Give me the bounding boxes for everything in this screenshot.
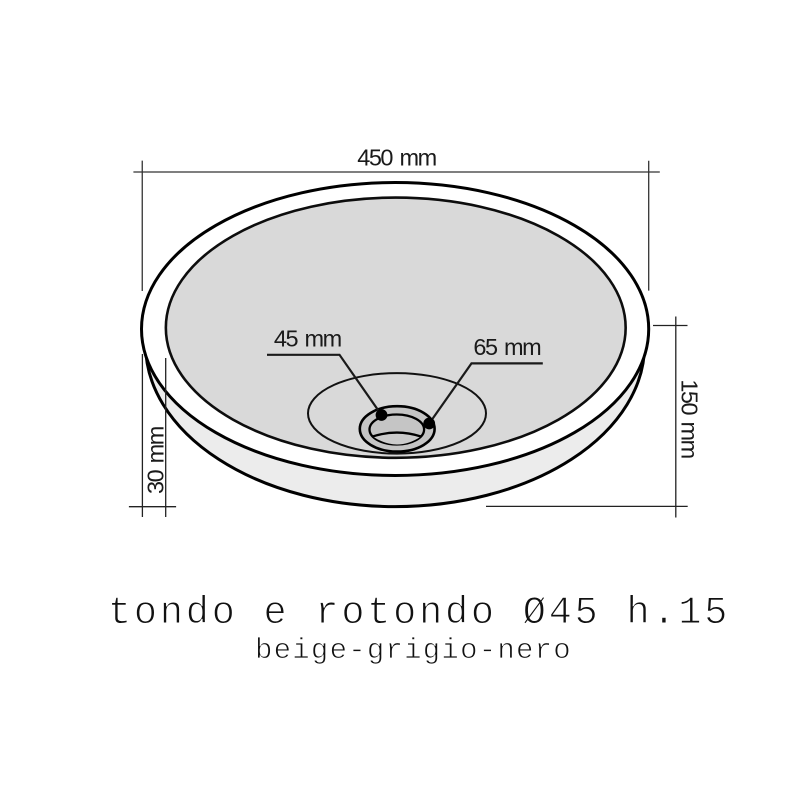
svg-text:450 mm: 450 mm xyxy=(357,145,436,171)
svg-text:tondo e rotondo Ø45 h.15: tondo e rotondo Ø45 h.15 xyxy=(108,591,730,635)
svg-text:beige-grigio-nero: beige-grigio-nero xyxy=(255,634,572,667)
svg-text:30 mm: 30 mm xyxy=(143,426,169,494)
svg-text:150 mm: 150 mm xyxy=(676,379,702,458)
svg-text:65 mm: 65 mm xyxy=(473,334,541,360)
svg-text:45 mm: 45 mm xyxy=(274,326,342,352)
